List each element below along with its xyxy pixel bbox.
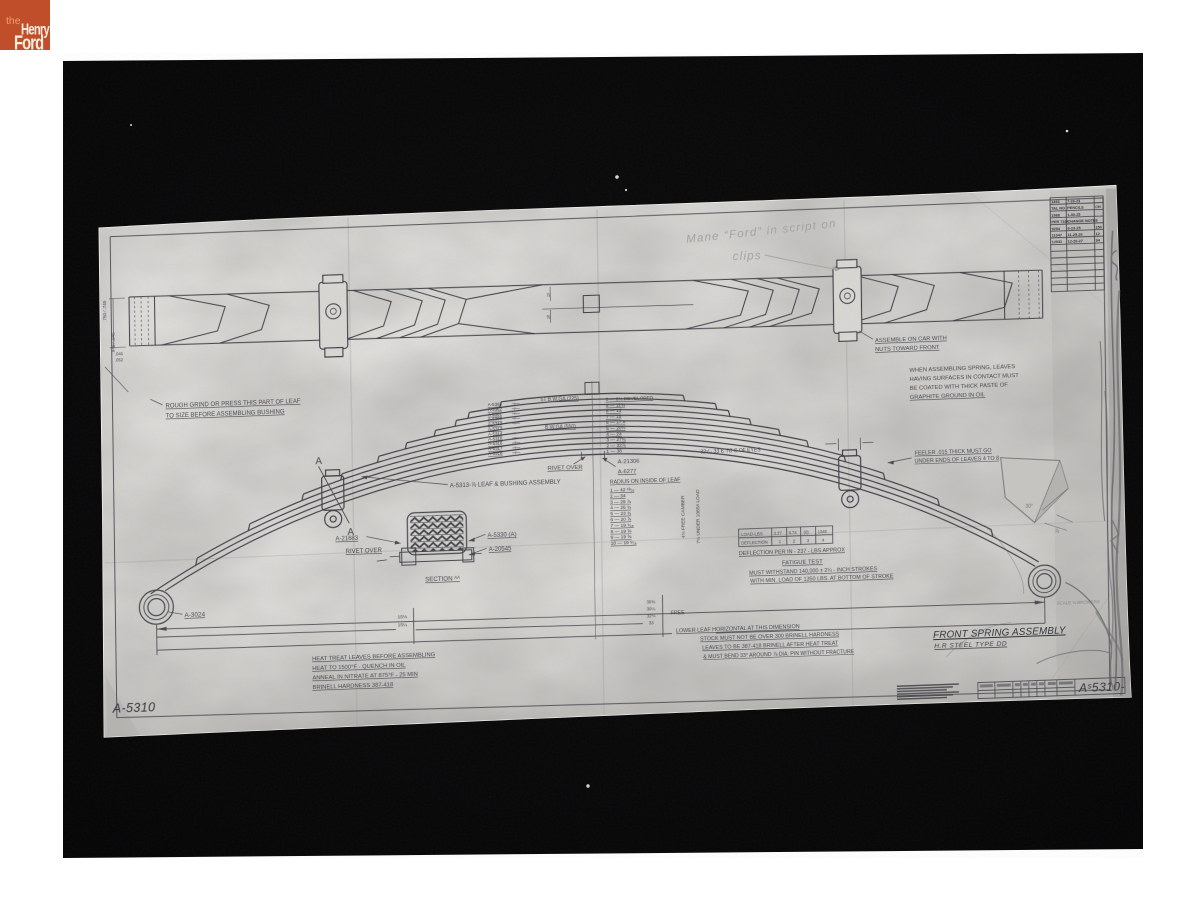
svg-text:the: the xyxy=(6,15,21,27)
svg-text:Ford: Ford xyxy=(14,31,43,54)
